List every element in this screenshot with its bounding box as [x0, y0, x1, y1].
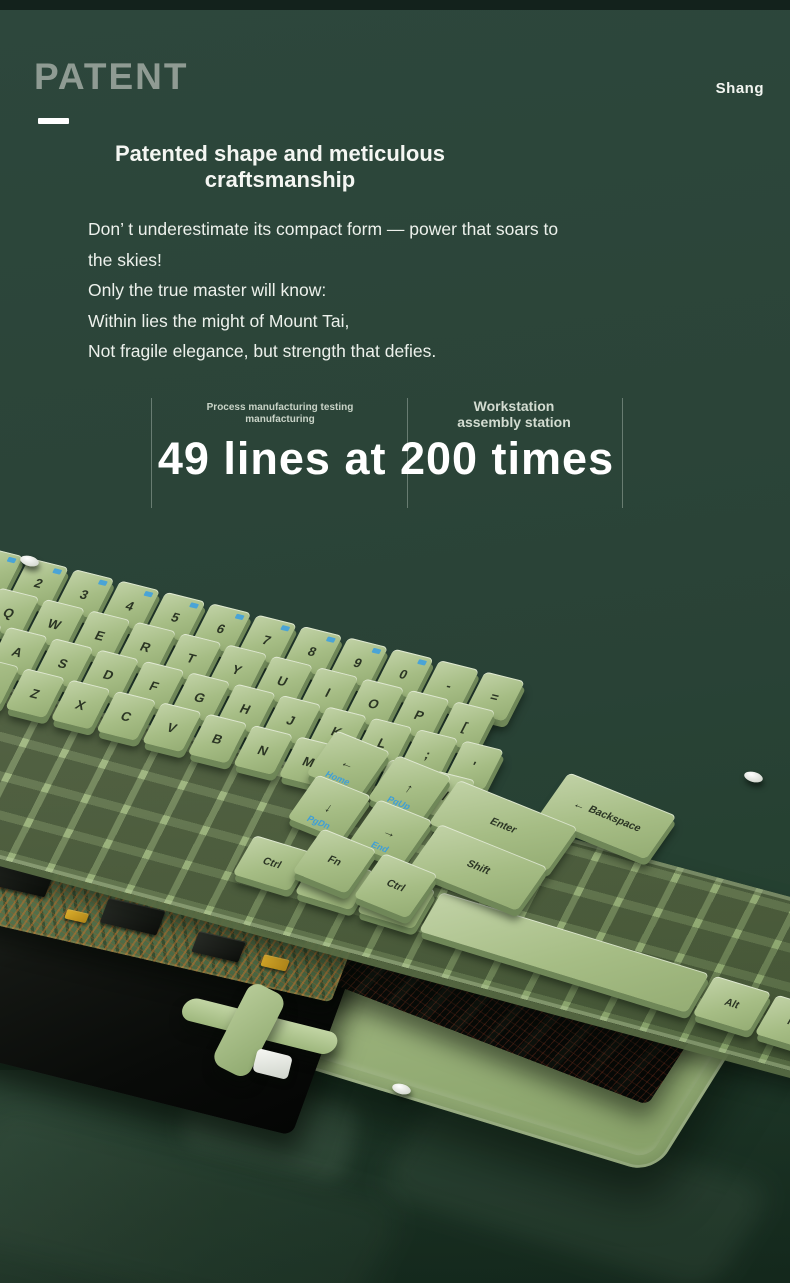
keycap-legend: H — [237, 701, 253, 717]
keycap-legend: A — [9, 644, 25, 660]
keycap-legend: N — [255, 742, 271, 758]
screw — [743, 770, 764, 785]
stat-col-2-line-1: Workstation — [404, 399, 624, 415]
keycap-legend: C — [118, 708, 134, 724]
headline-line-2: craftsmanship — [60, 167, 500, 193]
body-line: Don’ t underestimate its compact form — … — [88, 214, 748, 245]
keycap-legend: 8 — [305, 643, 319, 658]
keycap-legend: U — [275, 673, 291, 689]
keycap-legend: J — [284, 712, 298, 727]
keycap-legend: Backspace — [586, 804, 644, 835]
stats-section: Process manufacturing testing manufactur… — [0, 395, 790, 515]
keycap-legend: ↓ — [322, 800, 337, 815]
keycap-legend: 6 — [214, 621, 228, 636]
keycap-legend: 7 — [260, 632, 274, 647]
keycap-legend: D — [101, 666, 117, 682]
headline-line-1: Patented shape and meticulous — [60, 141, 500, 167]
product-page: PATENT Shang Patented shape and meticulo… — [0, 0, 790, 1283]
keycap-legend: - — [444, 678, 455, 693]
page-title: PATENT — [34, 56, 189, 98]
keycap-legend: 0 — [397, 666, 411, 681]
keycap-legend: E — [92, 627, 107, 643]
keycap-legend: Fn — [325, 854, 344, 869]
stat-col-2-line-2: assembly station — [404, 415, 624, 431]
pcb-capacitor — [64, 909, 89, 923]
body-line: Within lies the might of Mount Tai, — [88, 306, 748, 337]
keycap-legend: Y — [229, 661, 244, 677]
keycap-legend: R — [138, 639, 154, 655]
keycap-legend: ↑ — [402, 780, 417, 795]
keycap-legend: X — [73, 697, 88, 713]
title-underline — [38, 118, 69, 124]
headline: Patented shape and meticulous craftsmans… — [60, 141, 500, 193]
pcb-chip — [100, 898, 166, 936]
keycap-legend: → — [380, 823, 401, 840]
keycap-legend: G — [192, 689, 209, 705]
stat-col-1-line-2: manufacturing — [160, 414, 400, 426]
stat-col-1-line-1: Process manufacturing testing — [160, 402, 400, 414]
top-strip — [0, 0, 790, 10]
keycap-legend: Fn — [785, 1016, 790, 1030]
body-line: Not fragile elegance, but strength that … — [88, 336, 748, 367]
body-copy: Don’ t underestimate its compact form — … — [88, 214, 748, 367]
body-line: Only the true master will know: — [88, 275, 748, 306]
pcb-chip — [191, 931, 246, 963]
stat-col-2: Workstation assembly station — [404, 399, 624, 430]
brand-label: Shang — [716, 80, 764, 97]
keycap-legend: 3 — [77, 586, 91, 601]
keycap-legend: B — [210, 731, 226, 747]
keyboard-scene: Esc1234567890-=TabQWERTYUIOP[CapsASDFGHJ… — [0, 510, 790, 1283]
keycap-legend: 5 — [169, 609, 183, 624]
keycap-legend: ← — [338, 754, 359, 771]
keycap-legend: 9 — [351, 655, 365, 670]
keycap-legend: I — [323, 685, 334, 700]
keycap-legend: V — [164, 719, 179, 735]
body-line: the skies! — [88, 245, 748, 276]
keycap-legend: Alt — [722, 996, 742, 1011]
keycap-legend: Shift — [464, 858, 493, 877]
keycap-legend: = — [488, 689, 502, 705]
keycap-legend: 4 — [123, 598, 137, 613]
keycap-legend: F — [147, 678, 162, 694]
keycap-legend: 2 — [32, 575, 46, 590]
keycap-legend: S — [55, 655, 70, 671]
stats-headline: 49 lines at 200 times — [150, 433, 622, 485]
keycap-legend: Enter — [487, 816, 519, 836]
stat-col-1: Process manufacturing testing manufactur… — [160, 402, 400, 425]
keycap-legend: T — [184, 650, 199, 666]
keycap-legend: W — [45, 615, 64, 632]
keycap-legend: Ctrl — [384, 877, 408, 894]
keycap-legend: Q — [1, 604, 18, 620]
pcb-capacitor — [260, 954, 290, 971]
keycap-legend: Z — [28, 685, 43, 701]
